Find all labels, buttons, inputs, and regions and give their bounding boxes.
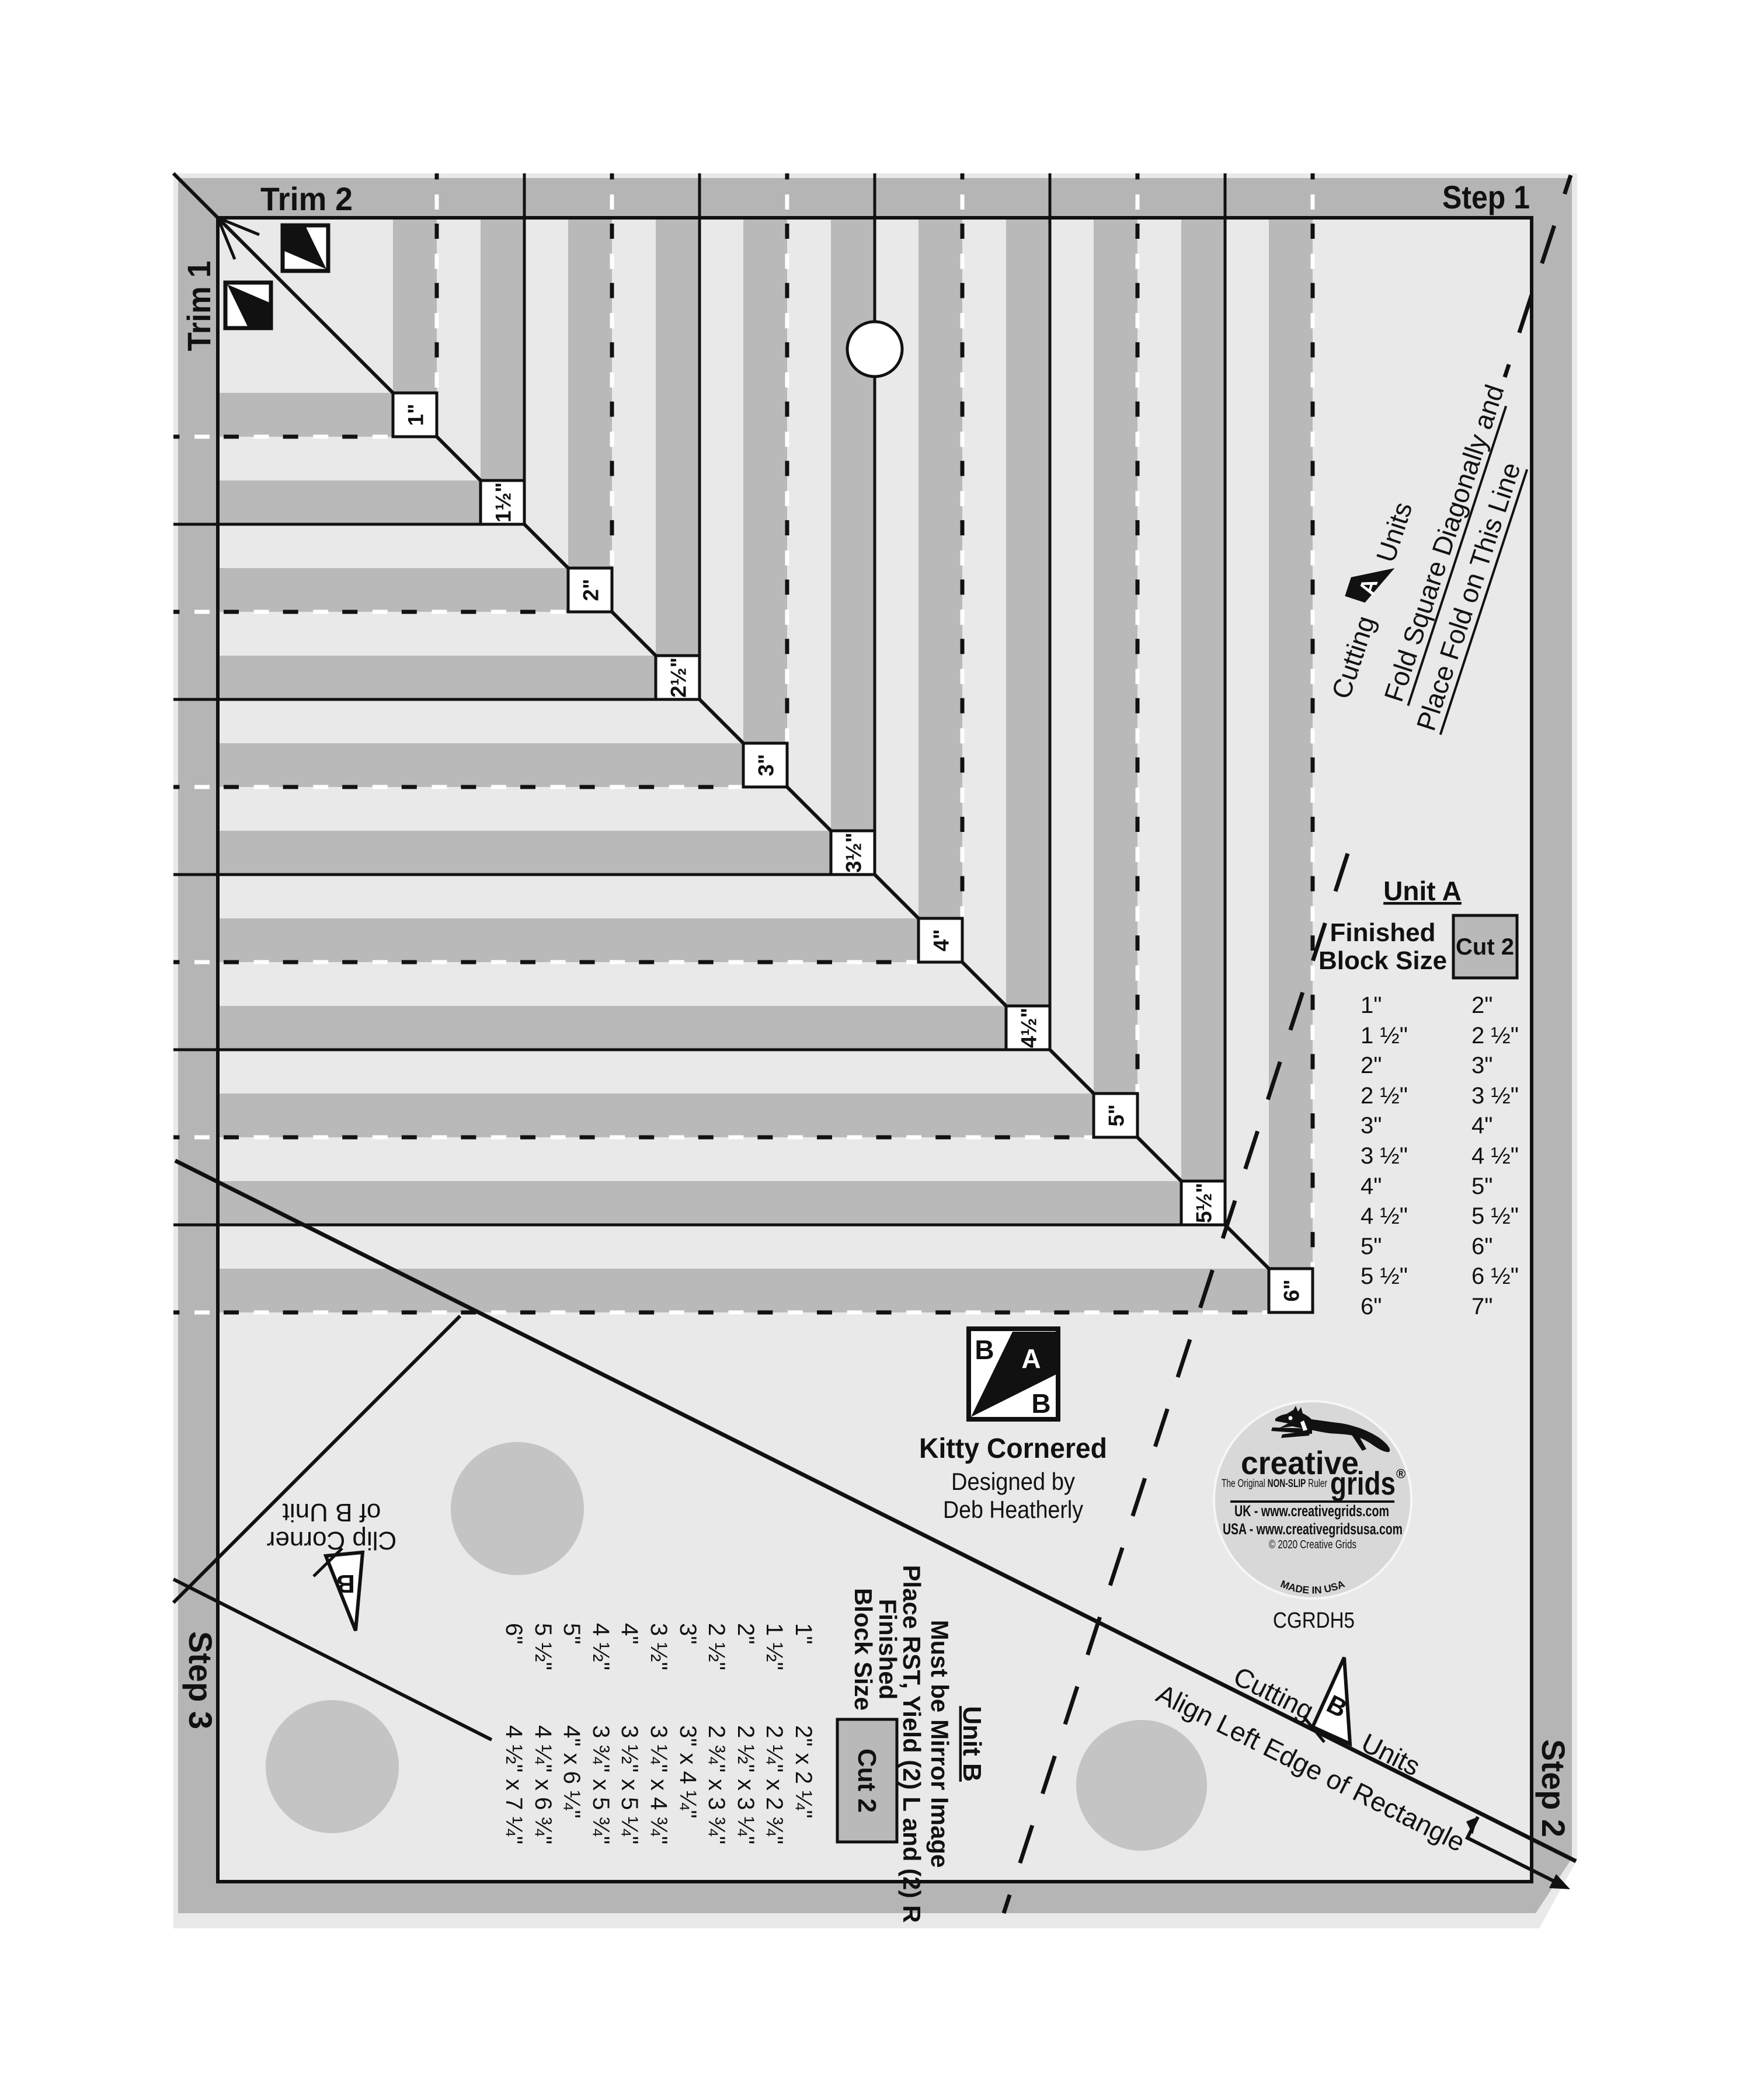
svg-text:5 ½": 5 ½" <box>1361 1263 1408 1289</box>
svg-text:3 ½": 3 ½" <box>646 1623 672 1670</box>
svg-text:Step 3: Step 3 <box>182 1631 219 1729</box>
svg-text:4" x 6 ¼": 4" x 6 ¼" <box>559 1725 585 1819</box>
svg-text:1 ½": 1 ½" <box>1361 1023 1408 1049</box>
svg-text:4": 4" <box>617 1623 642 1644</box>
svg-text:1": 1" <box>404 403 428 426</box>
svg-text:2 ½": 2 ½" <box>1361 1083 1408 1109</box>
svg-text:6": 6" <box>1280 1279 1304 1301</box>
svg-text:Step 1: Step 1 <box>1442 179 1530 215</box>
svg-text:1 ½": 1 ½" <box>761 1623 787 1670</box>
svg-text:5 ½": 5 ½" <box>1471 1203 1519 1229</box>
svg-text:2 ½" x 3 ¼": 2 ½" x 3 ¼" <box>733 1725 759 1844</box>
svg-text:4 ½": 4 ½" <box>1471 1143 1519 1169</box>
svg-text:UK - www.creativegrids.com: UK - www.creativegrids.com <box>1234 1502 1389 1520</box>
svg-text:Block Size: Block Size <box>850 1588 877 1711</box>
svg-text:4½": 4½" <box>1017 1008 1041 1048</box>
svg-text:2": 2" <box>733 1623 759 1644</box>
svg-text:1": 1" <box>1361 992 1382 1018</box>
svg-text:4 ½": 4 ½" <box>588 1623 614 1670</box>
svg-text:Must be Mirror Image: Must be Mirror Image <box>926 1620 954 1868</box>
svg-text:2 ¼" x 2 ¾": 2 ¼" x 2 ¾" <box>761 1725 787 1844</box>
svg-text:2 ¾" x 3 ¾": 2 ¾" x 3 ¾" <box>704 1725 729 1844</box>
svg-text:Clip Corner: Clip Corner <box>267 1526 397 1555</box>
svg-text:The Original NON-SLIP Ruler: The Original NON-SLIP Ruler <box>1222 1478 1327 1490</box>
svg-text:3 ½": 3 ½" <box>1471 1083 1519 1109</box>
svg-text:5": 5" <box>559 1623 585 1644</box>
svg-text:Unit B: Unit B <box>958 1706 986 1782</box>
svg-text:7": 7" <box>1471 1294 1492 1319</box>
svg-text:Unit A: Unit A <box>1383 876 1462 906</box>
svg-text:2": 2" <box>1471 992 1492 1018</box>
svg-text:3 ¼" x 4 ¾": 3 ¼" x 4 ¾" <box>646 1725 672 1844</box>
svg-text:Trim 2: Trim 2 <box>260 180 353 217</box>
svg-text:B: B <box>975 1335 994 1365</box>
svg-text:5": 5" <box>1471 1173 1492 1199</box>
svg-text:4 ½" x 7 ¼": 4 ½" x 7 ¼" <box>501 1725 527 1844</box>
svg-text:4 ¼" x 6 ¾": 4 ¼" x 6 ¾" <box>530 1725 556 1844</box>
svg-text:4": 4" <box>1361 1173 1382 1199</box>
svg-text:Cut 2: Cut 2 <box>1456 934 1514 960</box>
svg-text:3½": 3½" <box>842 833 866 873</box>
svg-text:Finished: Finished <box>874 1599 902 1700</box>
svg-text:4": 4" <box>1471 1113 1492 1138</box>
svg-text:5": 5" <box>1361 1234 1382 1259</box>
svg-text:3 ½" x 5 ¼": 3 ½" x 5 ¼" <box>617 1725 642 1844</box>
svg-text:Trim 1: Trim 1 <box>180 261 217 351</box>
svg-text:grids: grids <box>1330 1465 1396 1502</box>
svg-text:®: ® <box>1396 1467 1405 1481</box>
svg-text:3": 3" <box>1471 1053 1492 1078</box>
svg-text:6 ½": 6 ½" <box>1471 1263 1519 1289</box>
svg-text:CGRDH5: CGRDH5 <box>1273 1608 1355 1633</box>
svg-text:2": 2" <box>1361 1053 1382 1078</box>
svg-text:3 ¾" x 5 ¾": 3 ¾" x 5 ¾" <box>588 1725 614 1844</box>
svg-text:3": 3" <box>675 1623 701 1644</box>
svg-text:2 ½": 2 ½" <box>1471 1023 1519 1049</box>
svg-text:2 ½": 2 ½" <box>704 1623 729 1670</box>
svg-text:USA - www.creativegridsusa.com: USA - www.creativegridsusa.com <box>1223 1520 1403 1538</box>
svg-text:B: B <box>336 1569 355 1598</box>
svg-text:2½": 2½" <box>667 657 691 698</box>
svg-text:6": 6" <box>1361 1294 1382 1319</box>
svg-text:B: B <box>1031 1388 1050 1419</box>
svg-text:Finished: Finished <box>1330 918 1436 947</box>
svg-text:Cut 2: Cut 2 <box>853 1749 881 1813</box>
svg-text:3 ½": 3 ½" <box>1361 1143 1408 1169</box>
svg-text:2": 2" <box>579 579 603 601</box>
svg-text:4 ½": 4 ½" <box>1361 1203 1408 1229</box>
svg-text:4": 4" <box>930 929 954 951</box>
svg-text:1½": 1½" <box>492 482 516 523</box>
svg-text:Designed by: Designed by <box>951 1468 1075 1495</box>
svg-text:5": 5" <box>1105 1104 1129 1126</box>
svg-text:5½": 5½" <box>1192 1183 1216 1223</box>
svg-text:5 ½": 5 ½" <box>530 1623 556 1670</box>
svg-text:Place RST, Yield (2) L and (2): Place RST, Yield (2) L and (2) R <box>898 1565 926 1923</box>
svg-text:3": 3" <box>1361 1113 1382 1138</box>
svg-text:Block Size: Block Size <box>1318 946 1447 975</box>
svg-text:3": 3" <box>754 754 778 776</box>
svg-text:6": 6" <box>1471 1234 1492 1259</box>
svg-text:1": 1" <box>791 1623 816 1644</box>
svg-text:Step 2: Step 2 <box>1535 1739 1572 1837</box>
svg-text:2" x 2 ¼": 2" x 2 ¼" <box>791 1725 816 1819</box>
svg-text:A: A <box>1021 1343 1041 1374</box>
svg-text:of B Unit: of B Unit <box>283 1498 381 1527</box>
svg-text:6": 6" <box>501 1623 527 1644</box>
svg-text:© 2020 Creative Grids: © 2020 Creative Grids <box>1269 1538 1356 1551</box>
svg-text:3" x 4 ¼": 3" x 4 ¼" <box>675 1725 701 1819</box>
svg-text:Deb Heatherly: Deb Heatherly <box>943 1496 1083 1523</box>
svg-text:Kitty Cornered: Kitty Cornered <box>919 1433 1107 1464</box>
